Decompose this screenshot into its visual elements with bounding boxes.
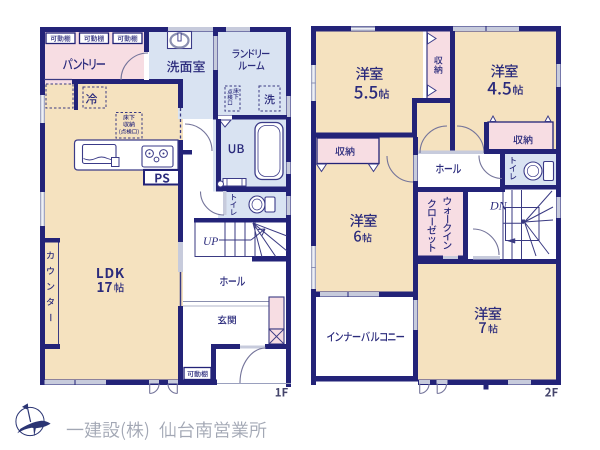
svg-text:DN: DN [489, 199, 508, 213]
svg-text:UP: UP [203, 236, 218, 248]
